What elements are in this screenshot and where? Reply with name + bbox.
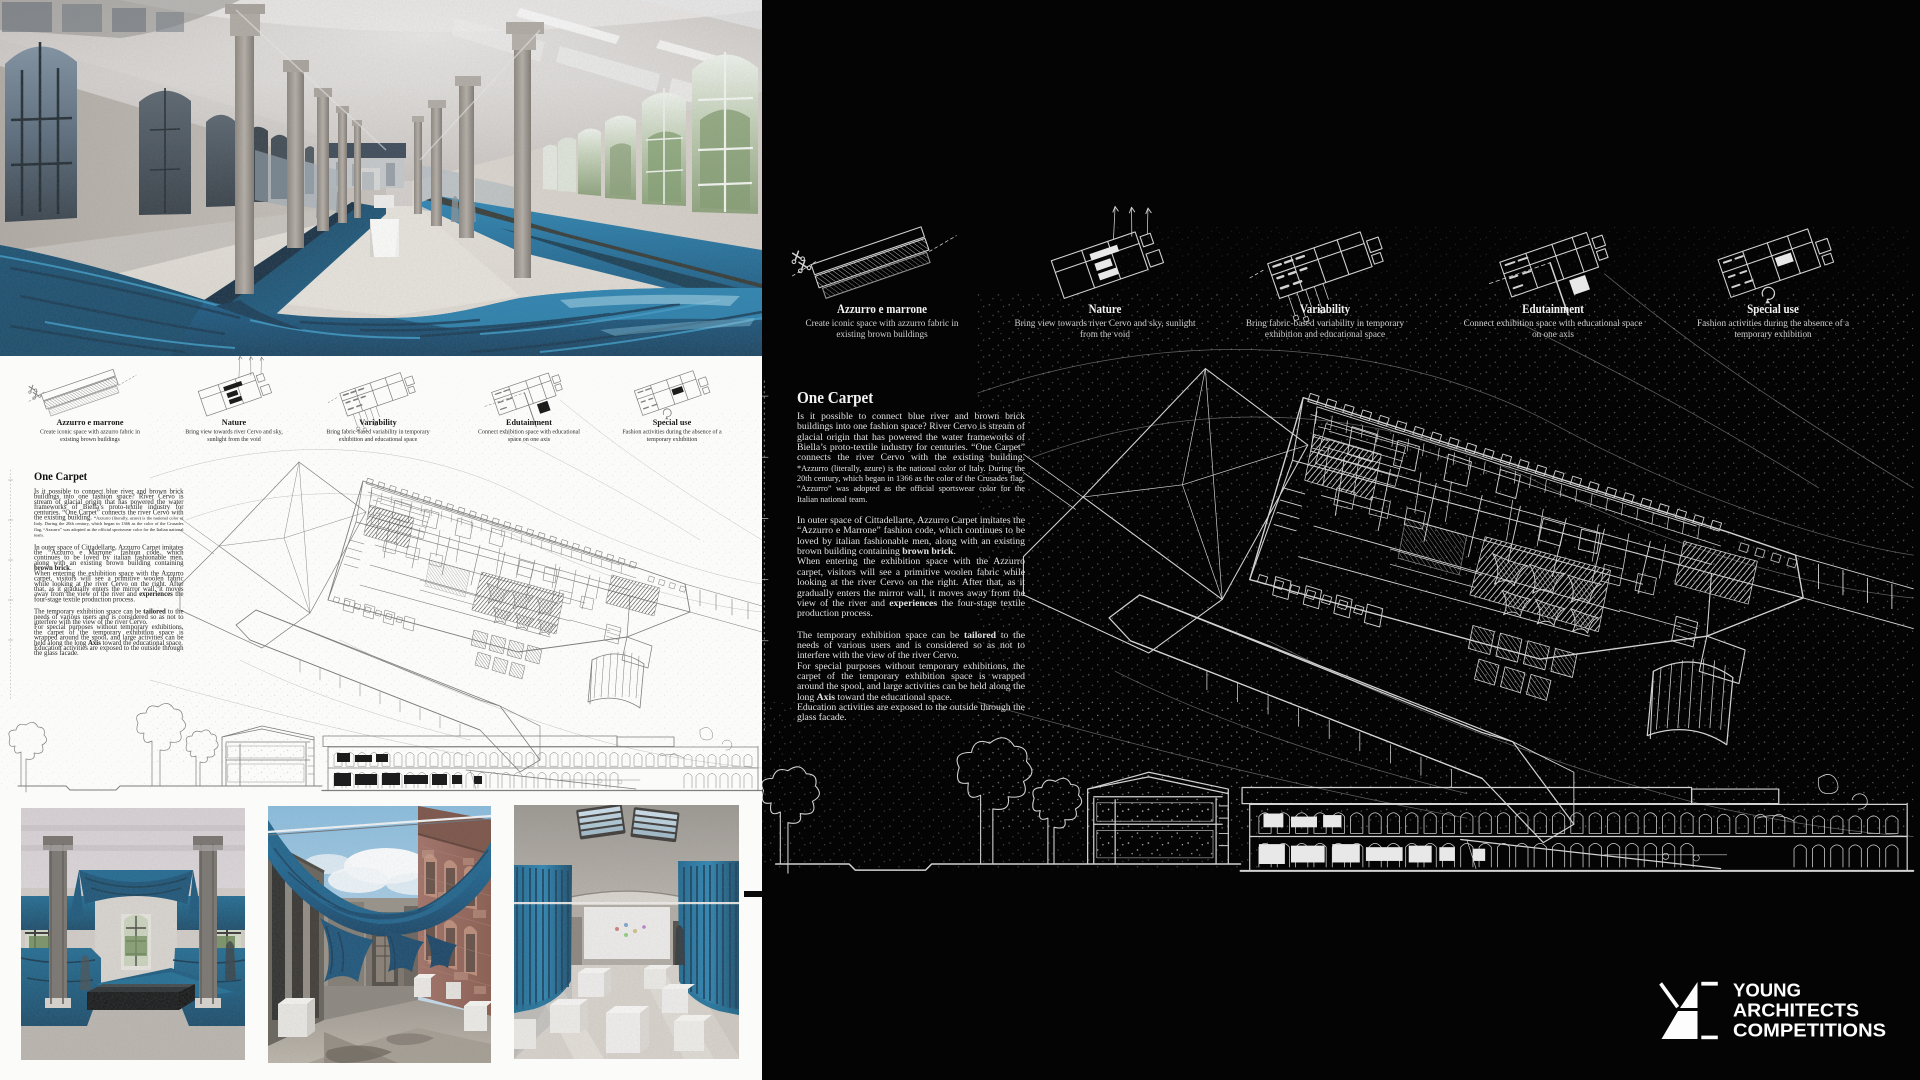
svg-text:YOUNG: YOUNG (1733, 981, 1801, 1001)
svg-text:ARCHITECTS: ARCHITECTS (1733, 1001, 1859, 1021)
svg-text:COMPETITIONS: COMPETITIONS (1733, 1021, 1886, 1041)
